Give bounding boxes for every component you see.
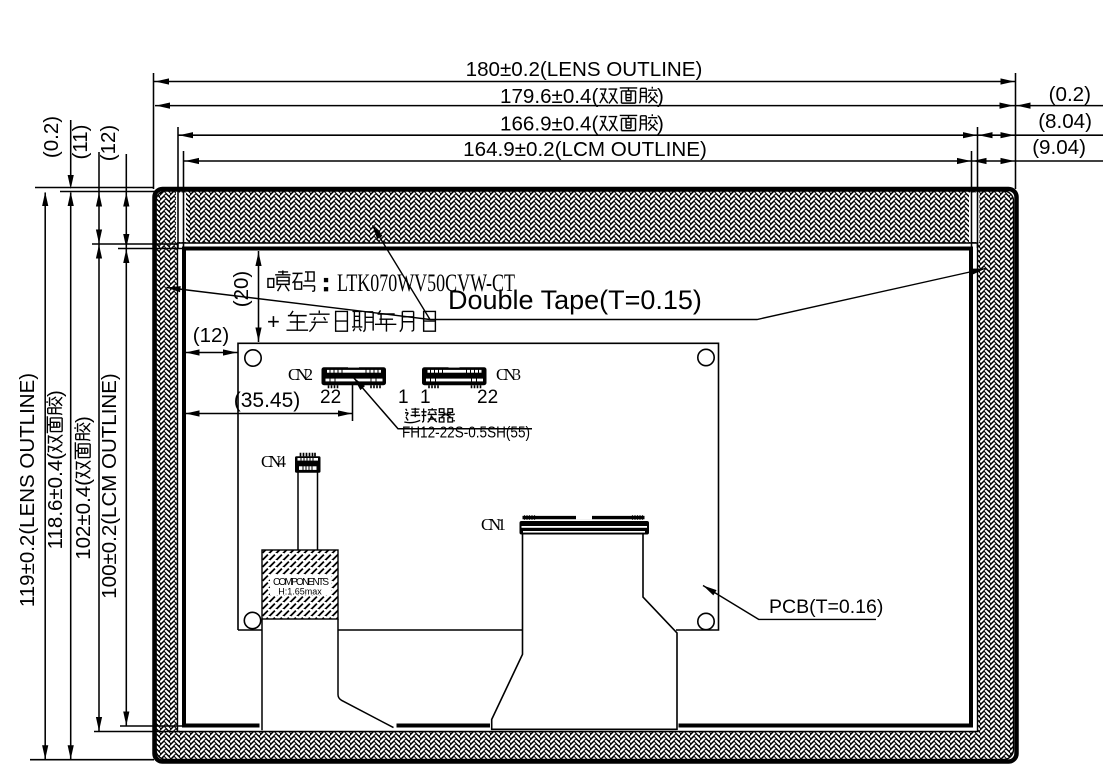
svg-text:22: 22 bbox=[477, 387, 498, 408]
svg-text:(35.45): (35.45) bbox=[234, 389, 301, 412]
svg-text:(8.04): (8.04) bbox=[1038, 110, 1092, 133]
svg-text:(20): (20) bbox=[230, 271, 253, 307]
svg-text:H:1.65max: H:1.65max bbox=[278, 587, 322, 597]
svg-text:22: 22 bbox=[320, 387, 341, 408]
svg-text:(9.04): (9.04) bbox=[1032, 136, 1086, 159]
svg-text:): ) bbox=[72, 416, 95, 423]
svg-text:179.6±0.4(: 179.6±0.4( bbox=[500, 85, 598, 108]
svg-text:1: 1 bbox=[398, 387, 409, 408]
svg-text:CN3: CN3 bbox=[496, 365, 521, 384]
svg-text:(12): (12) bbox=[193, 324, 229, 347]
svg-text:102±0.4(: 102±0.4( bbox=[72, 479, 95, 560]
svg-text:): ) bbox=[44, 390, 67, 397]
svg-text:CN1: CN1 bbox=[481, 515, 506, 534]
svg-text:119±0.2(LENS OUTLINE): 119±0.2(LENS OUTLINE) bbox=[16, 373, 39, 607]
svg-text:166.9±0.4(: 166.9±0.4( bbox=[500, 113, 598, 136]
svg-text:164.9±0.2(LCM OUTLINE): 164.9±0.2(LCM OUTLINE) bbox=[463, 138, 707, 161]
svg-text:1: 1 bbox=[420, 387, 431, 408]
svg-text:(0.2): (0.2) bbox=[40, 116, 63, 158]
svg-text:): ) bbox=[657, 113, 664, 136]
svg-text:PCB(T=0.16): PCB(T=0.16) bbox=[769, 596, 883, 618]
svg-text:+: + bbox=[267, 309, 280, 334]
svg-text:Double Tape(T=0.15): Double Tape(T=0.15) bbox=[448, 285, 702, 315]
svg-text:(11): (11) bbox=[69, 125, 92, 160]
svg-text:): ) bbox=[657, 85, 664, 108]
svg-text:118.6±0.4(: 118.6±0.4( bbox=[44, 453, 67, 550]
svg-text:180±0.2(LENS OUTLINE): 180±0.2(LENS OUTLINE) bbox=[466, 58, 703, 81]
svg-text:100±0.2(LCM OUTLINE): 100±0.2(LCM OUTLINE) bbox=[98, 373, 121, 598]
svg-text:(0.2): (0.2) bbox=[1049, 83, 1091, 106]
svg-text:FH12-22S-0.5SH(55): FH12-22S-0.5SH(55) bbox=[402, 425, 530, 442]
svg-text:CN4: CN4 bbox=[261, 452, 287, 471]
svg-text:(12): (12) bbox=[97, 125, 120, 161]
svg-text::: : bbox=[452, 409, 456, 426]
svg-text:CN2: CN2 bbox=[288, 365, 313, 384]
